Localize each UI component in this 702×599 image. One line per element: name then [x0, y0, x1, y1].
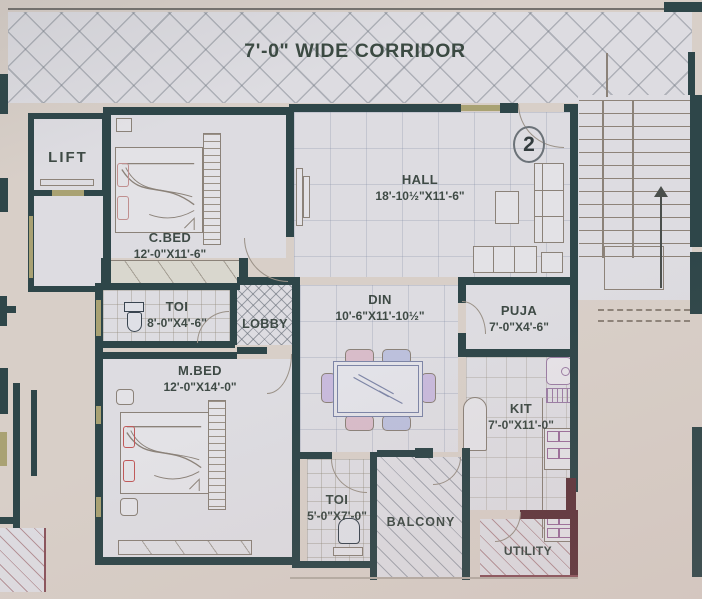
wall-segment	[28, 286, 103, 292]
room-label-lobby: LOBBY	[236, 316, 294, 332]
dining-chair	[382, 415, 411, 431]
cbed-hall-wall	[286, 107, 294, 237]
sofa-cushion-line	[542, 164, 543, 242]
wall-segment	[690, 252, 702, 314]
bed-blanket-icon	[116, 148, 202, 232]
wall-segment	[13, 383, 20, 531]
corridor-line	[606, 53, 608, 97]
room-dims: 5'-0"X7'-0"	[296, 509, 378, 525]
utility-wall	[570, 510, 578, 577]
projection-dashed-line	[598, 320, 690, 322]
room-name: UTILITY	[494, 544, 562, 560]
balcony-bottom-line	[290, 577, 578, 579]
bed	[120, 412, 210, 494]
hall-bottom-wall	[458, 277, 578, 285]
sofa	[534, 163, 564, 243]
burner-icon	[547, 448, 559, 459]
room-dims: 10'-6"X11'-10½"	[320, 309, 440, 325]
stairwell-right-wall	[690, 95, 702, 247]
tv-unit	[296, 168, 303, 226]
lift-lobby-floor	[34, 196, 103, 286]
door-arc	[244, 238, 288, 282]
wall-segment	[31, 390, 37, 476]
room-name: LOBBY	[236, 316, 294, 332]
pillow	[117, 163, 129, 187]
sofa-cushion-line	[534, 216, 564, 217]
room-label-lift: LIFT	[30, 149, 106, 166]
bed-headboard	[203, 133, 221, 245]
room-dims: 12'-0"X11'-6"	[100, 247, 240, 263]
mbed-right-wall	[292, 352, 300, 568]
room-name: KIT	[465, 401, 577, 418]
window-segment	[96, 300, 101, 336]
room-name: BALCONY	[380, 514, 462, 530]
wall-segment	[0, 306, 16, 313]
room-label-toi1: TOI 8'-0"X4'-6"	[112, 299, 242, 331]
window-segment	[461, 105, 501, 111]
corridor-title: 7'-0" WIDE CORRIDOR	[140, 40, 570, 63]
hall-top-wall	[289, 104, 461, 112]
neighbour-utility-hatch	[0, 528, 46, 592]
dining-chair	[421, 373, 436, 403]
burner-icon	[547, 528, 559, 538]
wardrobe	[107, 260, 241, 284]
lobby-top-wall	[237, 277, 300, 285]
mbed-top-wall	[95, 352, 237, 359]
corridor-top-line	[8, 8, 692, 10]
room-dims: 8'-0"X4'-6"	[112, 316, 242, 332]
room-dims: 12'-0"X14'-0"	[120, 380, 280, 396]
stairs-up-arrow-icon	[654, 186, 668, 197]
tv-panel	[303, 176, 310, 218]
bed-headboard	[208, 400, 226, 510]
wall-segment	[692, 427, 702, 577]
sofa-cushion-line	[514, 247, 515, 272]
wall-segment	[0, 368, 8, 414]
room-name: C.BED	[100, 230, 240, 247]
window-segment	[29, 216, 33, 278]
stairs-landing	[604, 246, 664, 290]
sofa-cushion-line	[493, 247, 494, 272]
room-name: TOI	[112, 299, 242, 316]
room-name: HALL	[330, 172, 510, 189]
wall-segment	[0, 74, 8, 114]
window-segment	[96, 406, 101, 424]
room-name: PUJA	[465, 303, 573, 320]
room-dims: 18'-10½"X11'-6"	[330, 189, 510, 205]
wall-segment	[0, 517, 20, 524]
window-segment	[0, 432, 7, 466]
wall-segment	[415, 448, 433, 458]
cbed-top-wall	[103, 107, 289, 115]
projection-dashed-line	[598, 309, 690, 311]
dining-chair	[345, 415, 374, 431]
window-sill-band	[118, 540, 252, 555]
room-name: M.BED	[120, 363, 280, 380]
wall-segment	[664, 2, 702, 12]
wall-segment	[688, 52, 695, 95]
sink-drain-icon	[561, 367, 570, 376]
mbed-bottom-wall	[95, 557, 300, 565]
lift-sill	[52, 190, 84, 196]
wall-segment	[28, 113, 108, 119]
bedside-table	[116, 118, 132, 132]
dining-table	[333, 361, 423, 417]
room-label-balcony: BALCONY	[380, 514, 462, 530]
lobby-floor	[237, 285, 292, 345]
pillow	[123, 460, 135, 482]
bed	[115, 147, 203, 233]
wall-segment	[0, 178, 8, 212]
room-label-mbed: M.BED 12'-0"X14'-0"	[120, 363, 280, 395]
room-label-puja: PUJA 7'-0"X4'-6"	[465, 303, 573, 335]
room-label-kit: KIT 7'-0"X11'-0"	[465, 401, 577, 433]
lift-door	[40, 179, 94, 186]
stairs-steps	[579, 100, 690, 258]
room-label-utility: UTILITY	[494, 544, 562, 560]
wall-segment	[500, 103, 518, 113]
balcony-right-wall	[462, 448, 470, 580]
utility-wall	[520, 510, 576, 519]
toi2-top-wall	[300, 452, 332, 459]
room-label-toi2: TOI 5'-0"X7'-0"	[296, 492, 378, 524]
dining-table-glass-icon	[334, 362, 422, 416]
room-dims: 7'-0"X11'-0"	[465, 418, 577, 434]
floor-plan: 7'-0" WIDE CORRIDOR 2 LIFT C.BED 12'-0"X…	[0, 0, 702, 599]
window-segment	[96, 497, 101, 517]
lobby-bottom-wall	[237, 347, 267, 354]
room-label-hall: HALL 18'-10½"X11'-6"	[330, 172, 510, 204]
puja-bottom-wall	[458, 349, 578, 357]
bedside-table	[120, 498, 138, 516]
pillow	[123, 426, 135, 448]
unit-number-badge: 2	[513, 126, 545, 163]
room-label-din: DIN 10'-6"X11'-10½"	[320, 292, 440, 324]
kitchen-sink	[546, 357, 572, 385]
room-name: TOI	[296, 492, 378, 509]
toi1-top-wall	[95, 283, 240, 290]
wash-basin	[333, 547, 363, 556]
sofa	[473, 246, 537, 273]
room-label-cbed: C.BED 12'-0"X11'-6"	[100, 230, 240, 262]
stairs-stringer	[632, 100, 634, 258]
stairs-arrow-line	[660, 196, 662, 288]
toi2-bottom-wall	[300, 561, 377, 568]
pillow	[117, 196, 129, 220]
side-table	[541, 252, 563, 273]
room-dims: 7'-0"X4'-6"	[465, 320, 573, 336]
stairs-stringer	[602, 100, 604, 258]
hall-right-wall	[570, 104, 578, 294]
sofa-cushion-line	[534, 190, 564, 191]
room-name: DIN	[320, 292, 440, 309]
